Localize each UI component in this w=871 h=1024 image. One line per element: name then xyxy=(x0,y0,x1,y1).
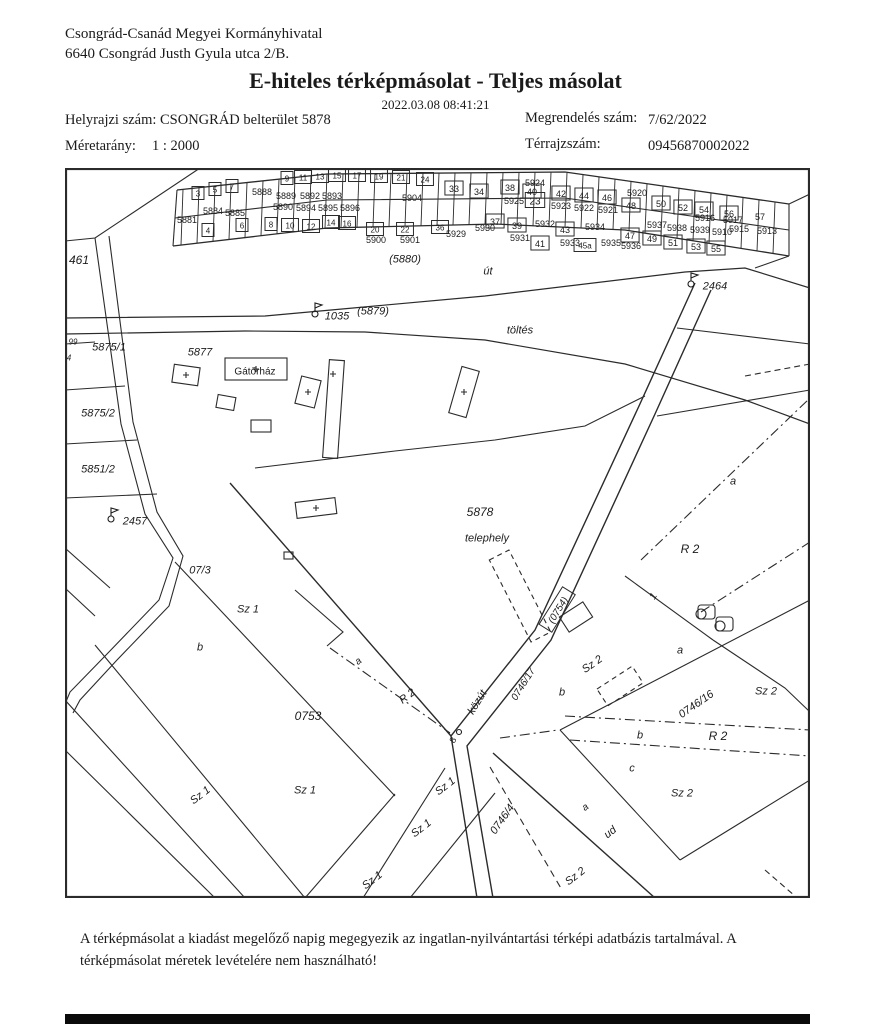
map-label: a xyxy=(677,645,683,657)
map-label: 34 xyxy=(474,187,484,197)
map-label: 4 xyxy=(67,354,72,363)
map-label: a xyxy=(730,476,736,488)
map-label: 5893 xyxy=(322,191,342,201)
map-label: R 2 xyxy=(681,542,700,556)
map-label: 5929 xyxy=(446,229,466,239)
map-label: 36 xyxy=(436,224,445,233)
map-label: 5895 xyxy=(318,203,338,213)
parcel-id-label: Helyrajzi szám: xyxy=(65,112,156,129)
map-label: 5896 xyxy=(340,203,360,213)
map-label: 22 xyxy=(401,226,410,235)
map-label: 38 xyxy=(505,183,515,193)
map-label: 5910 xyxy=(712,227,732,237)
map-label: 24 xyxy=(421,176,430,185)
map-label: 47 xyxy=(625,231,635,241)
office-name: Csongrád-Csanád Megyei Kormányhivatal xyxy=(65,24,322,44)
map-label: 5932 xyxy=(535,219,555,229)
office-address: 6640 Csongrád Justh Gyula utca 2/B. xyxy=(65,44,322,64)
map-label: 5921 xyxy=(598,205,618,215)
map-label: Sz 2 xyxy=(580,653,605,675)
map-label: 5881 xyxy=(177,215,197,225)
order-number-label: Megrendelés szám: xyxy=(525,110,637,127)
map-label: 5931 xyxy=(510,233,530,243)
map-label: 15 xyxy=(333,172,342,181)
map-label: 5922 xyxy=(574,203,594,213)
map-drawing-number-value: 09456870002022 xyxy=(648,138,750,155)
map-label: 461 xyxy=(69,253,89,267)
map-label: telephely xyxy=(465,533,511,545)
map-label: 2457 xyxy=(122,516,148,528)
map-label: 37 xyxy=(490,217,500,227)
map-label: 5935 xyxy=(601,238,621,248)
scale-label: Méretarány: xyxy=(65,138,136,155)
cadastral-map: 461(5880)út1035(5879)töltés2464995875/14… xyxy=(65,168,810,898)
map-label: 43 xyxy=(560,225,570,235)
map-label: b xyxy=(559,687,565,699)
map-label: 56 xyxy=(724,209,734,219)
map-label: 0746/17 xyxy=(509,666,538,703)
map-label: a xyxy=(353,655,365,667)
map-label: 5933 xyxy=(560,238,580,248)
map-label: Gátőrház xyxy=(234,366,275,377)
map-label: Sz 1 xyxy=(433,775,458,798)
map-label: töltés xyxy=(507,325,534,337)
map-label: 46 xyxy=(602,193,612,203)
map-label: Sz 1 xyxy=(188,784,213,807)
map-label: 5904 xyxy=(402,193,422,203)
map-label: 07/3 xyxy=(189,565,211,577)
map-label: ud xyxy=(602,823,620,841)
map-label: 5888 xyxy=(252,187,272,197)
map-label: 51 xyxy=(668,238,678,248)
map-buildings xyxy=(172,358,733,706)
map-label: 12 xyxy=(307,223,316,232)
map-label: 1035 xyxy=(325,311,350,323)
map-label: 49 xyxy=(647,234,657,244)
map-label: 41 xyxy=(535,239,545,249)
map-label: 5 xyxy=(213,186,218,195)
map-label: (5879) xyxy=(357,306,389,318)
map-label: Sz 2 xyxy=(563,865,588,888)
map-label: 9 xyxy=(285,175,290,184)
map-label: 5875/1 xyxy=(92,342,126,354)
map-label: 50 xyxy=(656,199,666,209)
map-drawing-number-label: Térrajzszám: xyxy=(525,136,601,153)
map-label: 5885 xyxy=(225,208,245,218)
map-label: 57 xyxy=(755,212,765,222)
map-label: 5889 xyxy=(276,191,296,201)
map-label: 5934 xyxy=(585,222,605,232)
map-label: 45a xyxy=(578,242,592,251)
map-label: 33 xyxy=(449,184,459,194)
document-timestamp: 2022.03.08 08:41:21 xyxy=(0,97,871,113)
map-label: 5925 xyxy=(504,196,524,206)
map-label: 99 xyxy=(69,338,78,347)
map-label: 2464 xyxy=(702,281,727,293)
map-label: 5878 xyxy=(467,505,494,519)
map-label: Sz 1 xyxy=(237,604,259,616)
map-label: 53 xyxy=(691,242,701,252)
map-label: 39 xyxy=(512,221,522,231)
map-label: 5913 xyxy=(757,226,777,236)
map-label: R 2 xyxy=(397,686,418,706)
issuing-office-block: Csongrád-Csanád Megyei Kormányhivatal 66… xyxy=(65,24,322,64)
map-label: 0753 xyxy=(295,709,322,723)
map-label: b xyxy=(637,730,643,742)
page-title: E-hiteles térképmásolat - Teljes másolat xyxy=(0,68,871,94)
map-label: 5937 xyxy=(647,220,667,230)
map-label: 4 xyxy=(206,227,211,236)
map-label: út xyxy=(483,266,493,278)
disclaimer-text: A térképmásolat a kiadást megelőző napig… xyxy=(80,928,786,972)
map-label: 42 xyxy=(556,189,566,199)
scale-value: 1 : 2000 xyxy=(152,138,200,155)
map-label: Sz 2 xyxy=(671,788,693,800)
map-label: 16 xyxy=(343,220,352,229)
map-label: 5936 xyxy=(621,241,641,251)
map-label: 5877 xyxy=(188,347,213,359)
map-label: 5923 xyxy=(551,201,571,211)
map-label: c xyxy=(629,763,635,775)
parcel-id-value: CSONGRÁD belterület 5878 xyxy=(160,112,331,129)
map-label: 17 xyxy=(353,172,362,181)
map-label: 14 xyxy=(327,219,336,228)
map-label: 13 xyxy=(316,173,325,182)
map-label: Sz 1 xyxy=(360,869,385,892)
map-label: 48 xyxy=(626,201,636,211)
map-labels: 461(5880)út1035(5879)töltés2464995875/14… xyxy=(67,169,777,893)
map-label: R 2 xyxy=(709,729,728,743)
map-label: 8 xyxy=(269,221,274,230)
map-label: 6 xyxy=(240,222,245,231)
map-label: 5890 xyxy=(273,202,293,212)
map-label: 5939 xyxy=(690,225,710,235)
map-label: 10 xyxy=(286,222,295,231)
map-label: Sz 1 xyxy=(294,785,316,797)
map-label: (5880) xyxy=(389,254,421,266)
tree-symbol xyxy=(698,605,715,619)
map-label: 44 xyxy=(579,191,589,201)
map-label: 5920 xyxy=(627,188,647,198)
map-label: 8 xyxy=(447,735,458,745)
map-label: 3 xyxy=(196,190,201,199)
map-label: 11 xyxy=(299,174,308,183)
map-label: 40 xyxy=(527,187,537,197)
map-label: Sz 1 xyxy=(409,817,434,840)
map-label: Sz 2 xyxy=(755,686,777,698)
map-label: 19 xyxy=(375,173,384,182)
map-label: 20 xyxy=(371,226,380,235)
map-label: 52 xyxy=(678,203,688,213)
map-label: 55 xyxy=(711,244,721,254)
map-label: 0746/4 xyxy=(488,802,517,836)
map-label: 21 xyxy=(397,174,406,183)
map-label: 5851/2 xyxy=(81,464,115,476)
map-label: 5901 xyxy=(400,235,420,245)
map-label: 5892 xyxy=(300,191,320,201)
order-number-value: 7/62/2022 xyxy=(648,112,707,129)
map-label: b xyxy=(197,642,203,654)
survey-point-icon xyxy=(108,273,698,735)
map-label: 5884 xyxy=(203,206,223,216)
map-label: 5875/2 xyxy=(81,408,115,420)
map-label: 0746/16 xyxy=(677,688,717,721)
map-label: 5900 xyxy=(366,235,386,245)
map-label: 54 xyxy=(699,205,709,215)
map-label: a xyxy=(580,801,592,813)
redaction-bar xyxy=(65,1014,810,1024)
map-label: 5894 xyxy=(296,203,316,213)
map-label: 7 xyxy=(230,183,235,192)
map-label: 5938 xyxy=(667,223,687,233)
